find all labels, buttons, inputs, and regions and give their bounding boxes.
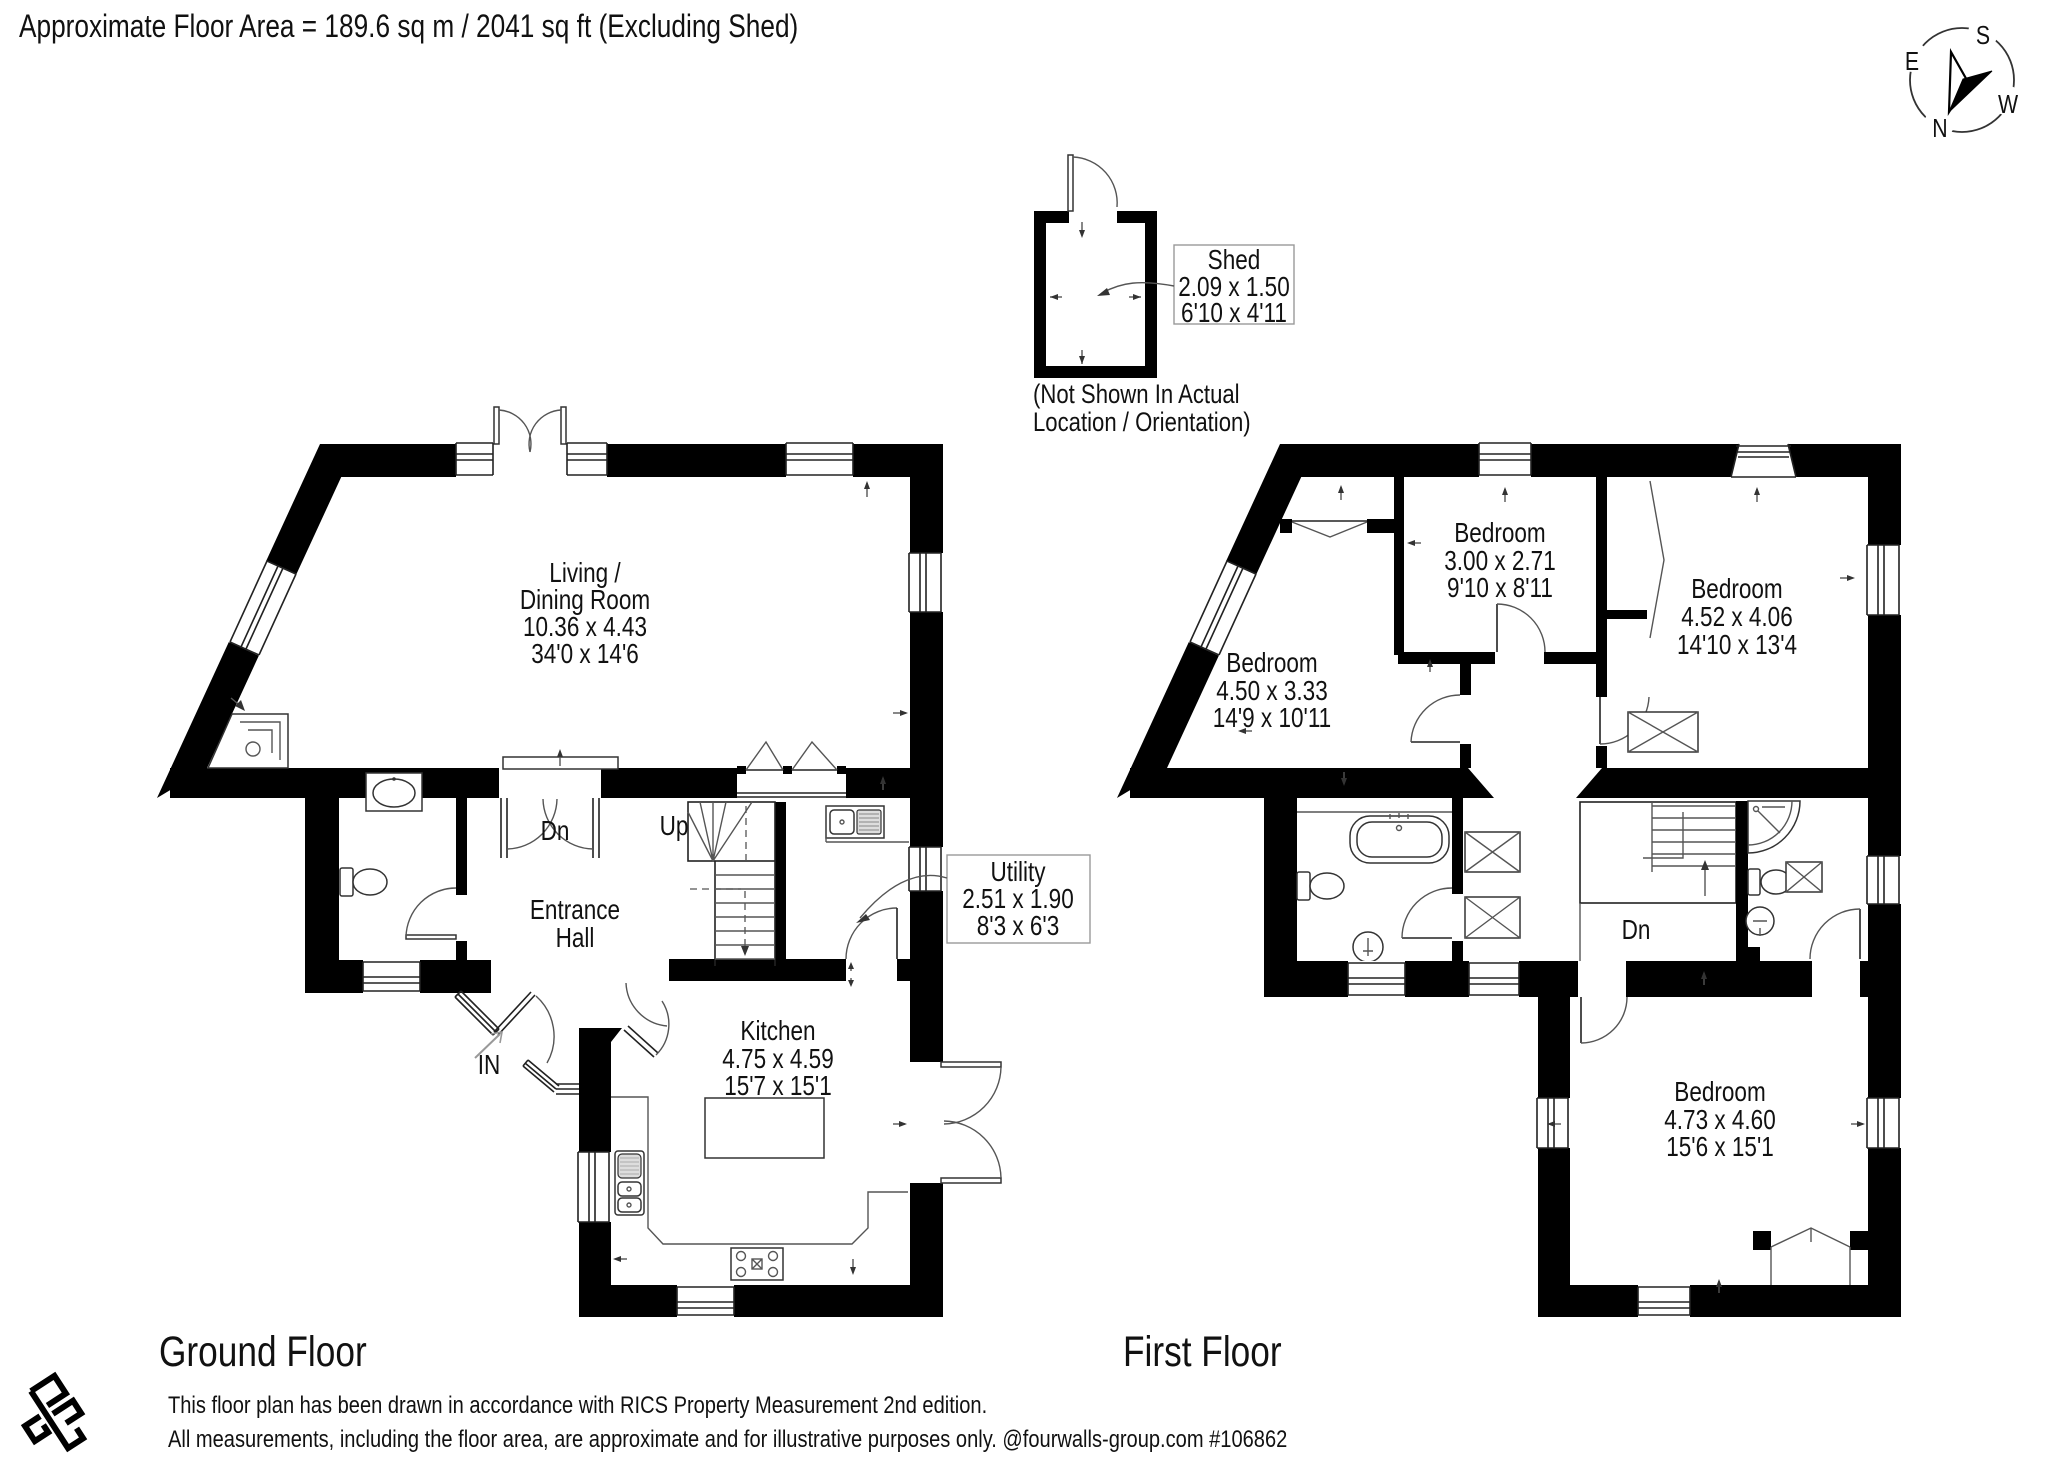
svg-text:Bedroom: Bedroom bbox=[1674, 1077, 1765, 1108]
svg-text:Dn: Dn bbox=[1622, 915, 1651, 946]
svg-text:Location / Orientation): Location / Orientation) bbox=[1033, 408, 1251, 438]
svg-text:All measurements, including th: All measurements, including the floor ar… bbox=[168, 1425, 1287, 1452]
svg-text:Approximate Floor Area = 189.6: Approximate Floor Area = 189.6 sq m / 20… bbox=[19, 10, 798, 45]
svg-text:34'0 x 14'6: 34'0 x 14'6 bbox=[531, 639, 639, 670]
svg-text:Bedroom: Bedroom bbox=[1454, 518, 1545, 549]
svg-text:14'9 x 10'11: 14'9 x 10'11 bbox=[1213, 703, 1331, 734]
svg-text:Entrance: Entrance bbox=[530, 895, 620, 926]
svg-text:4.52 x 4.06: 4.52 x 4.06 bbox=[1681, 602, 1792, 633]
svg-text:14'10 x 13'4: 14'10 x 13'4 bbox=[1677, 630, 1797, 661]
svg-text:6'10 x 4'11: 6'10 x 4'11 bbox=[1181, 298, 1287, 329]
svg-text:15'7 x 15'1: 15'7 x 15'1 bbox=[724, 1071, 832, 1102]
svg-text:This floor plan has been drawn: This floor plan has been drawn in accord… bbox=[168, 1391, 987, 1418]
svg-text:9'10 x 8'11: 9'10 x 8'11 bbox=[1447, 573, 1553, 604]
svg-text:(Not Shown In Actual: (Not Shown In Actual bbox=[1033, 380, 1240, 410]
svg-text:N: N bbox=[1932, 114, 1947, 144]
svg-text:Up: Up bbox=[660, 811, 689, 842]
svg-text:E: E bbox=[1905, 47, 1919, 77]
svg-text:Bedroom: Bedroom bbox=[1226, 648, 1317, 679]
svg-text:IN: IN bbox=[478, 1050, 501, 1081]
svg-text:15'6 x 15'1: 15'6 x 15'1 bbox=[1666, 1132, 1774, 1163]
svg-text:Ground Floor: Ground Floor bbox=[159, 1328, 367, 1376]
svg-text:8'3 x 6'3: 8'3 x 6'3 bbox=[977, 911, 1060, 942]
svg-text:Kitchen: Kitchen bbox=[740, 1016, 815, 1047]
svg-text:First Floor: First Floor bbox=[1123, 1328, 1282, 1376]
svg-text:Bedroom: Bedroom bbox=[1691, 574, 1782, 605]
svg-text:Hall: Hall bbox=[556, 923, 595, 954]
svg-text:W: W bbox=[1998, 90, 2019, 120]
svg-text:S: S bbox=[1976, 21, 1990, 51]
svg-text:Dn: Dn bbox=[541, 816, 570, 847]
